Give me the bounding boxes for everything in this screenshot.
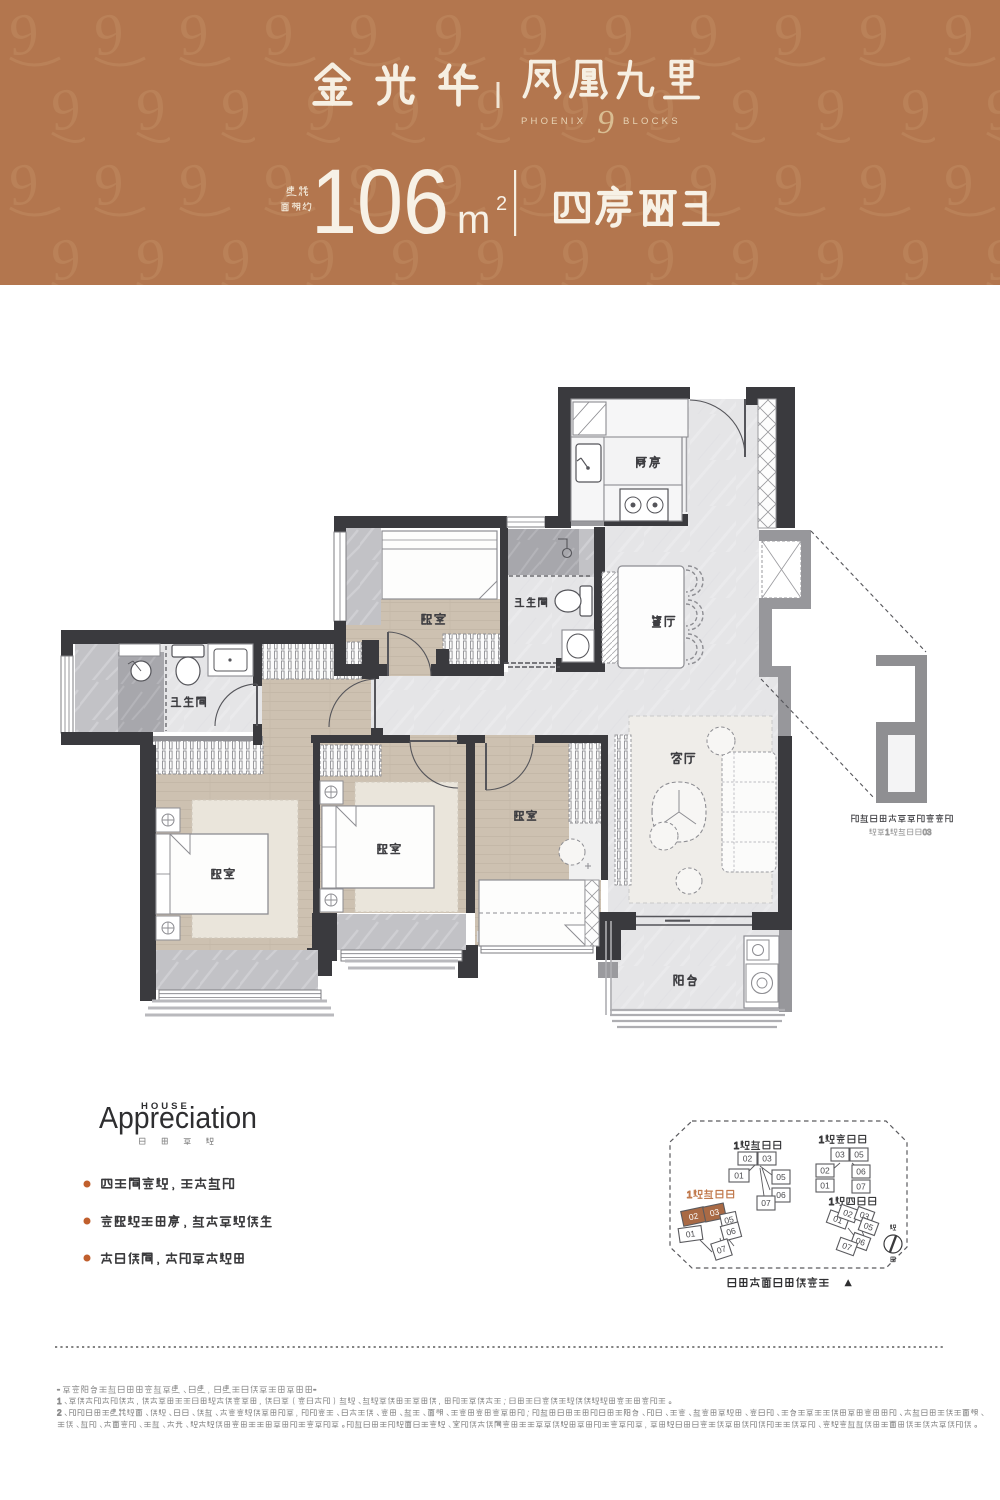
svg-text:03: 03 xyxy=(835,1150,845,1160)
svg-text:2: 2 xyxy=(57,1409,62,1418)
svg-text:07: 07 xyxy=(856,1182,866,1192)
svg-text:9: 9 xyxy=(597,104,614,141)
svg-text:06: 06 xyxy=(776,1190,786,1200)
svg-text:Appreciation: Appreciation xyxy=(99,1100,257,1135)
svg-text:01: 01 xyxy=(820,1181,830,1191)
svg-text:-: - xyxy=(313,1385,316,1395)
svg-text:05: 05 xyxy=(854,1150,864,1160)
svg-text:BLOCKS: BLOCKS xyxy=(623,116,681,127)
svg-text:06: 06 xyxy=(856,1167,866,1177)
svg-text:02: 02 xyxy=(743,1154,753,1164)
svg-text:1: 1 xyxy=(687,1189,693,1201)
svg-text:05: 05 xyxy=(776,1172,786,1182)
svg-text:1: 1 xyxy=(734,1140,740,1152)
svg-text:1: 1 xyxy=(885,828,890,837)
svg-text:01: 01 xyxy=(685,1228,696,1239)
svg-text:03: 03 xyxy=(923,828,932,837)
svg-text:07: 07 xyxy=(761,1198,771,1208)
svg-text:01: 01 xyxy=(734,1171,744,1181)
svg-text:106: 106 xyxy=(311,151,449,253)
svg-text:1: 1 xyxy=(829,1196,835,1208)
svg-text:1: 1 xyxy=(819,1134,825,1146)
svg-text:2: 2 xyxy=(496,193,507,215)
svg-text:m: m xyxy=(457,198,490,242)
svg-text:1: 1 xyxy=(57,1397,62,1406)
svg-text:-: - xyxy=(57,1385,60,1395)
svg-text:03: 03 xyxy=(762,1154,772,1164)
svg-text:PHOENIX: PHOENIX xyxy=(521,116,586,127)
svg-text:02: 02 xyxy=(820,1166,830,1176)
